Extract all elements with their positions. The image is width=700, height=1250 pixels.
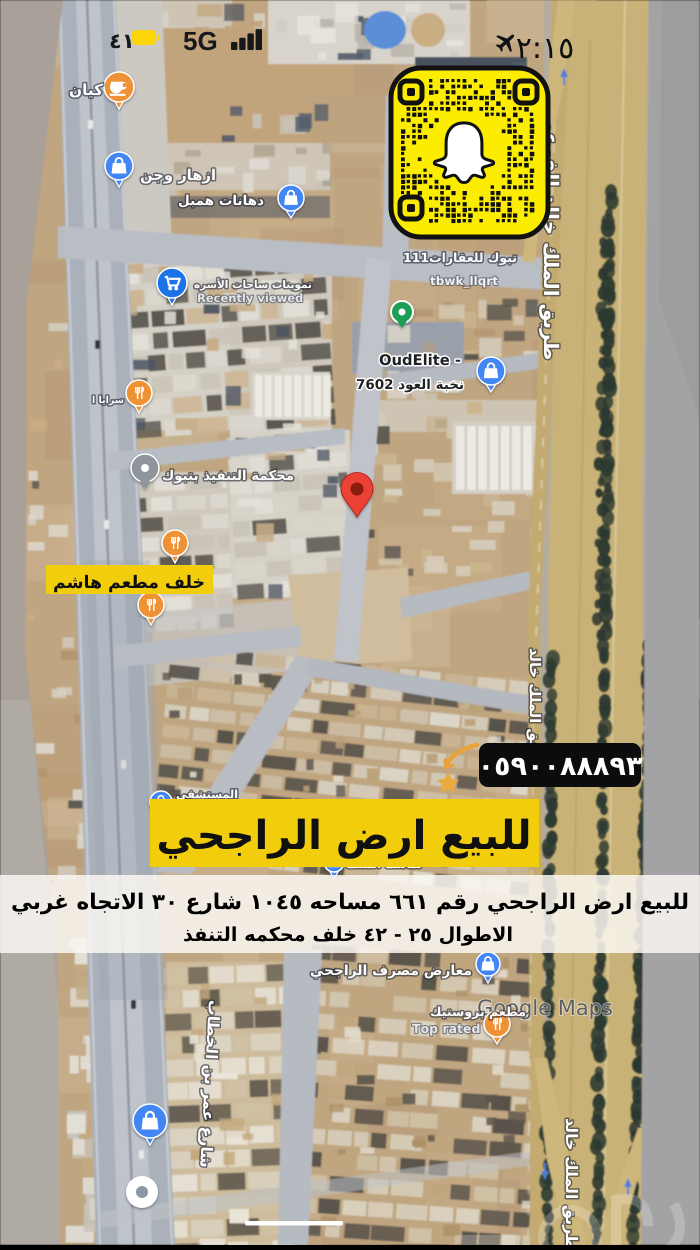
svg-text:5G: 5G — [183, 26, 218, 56]
